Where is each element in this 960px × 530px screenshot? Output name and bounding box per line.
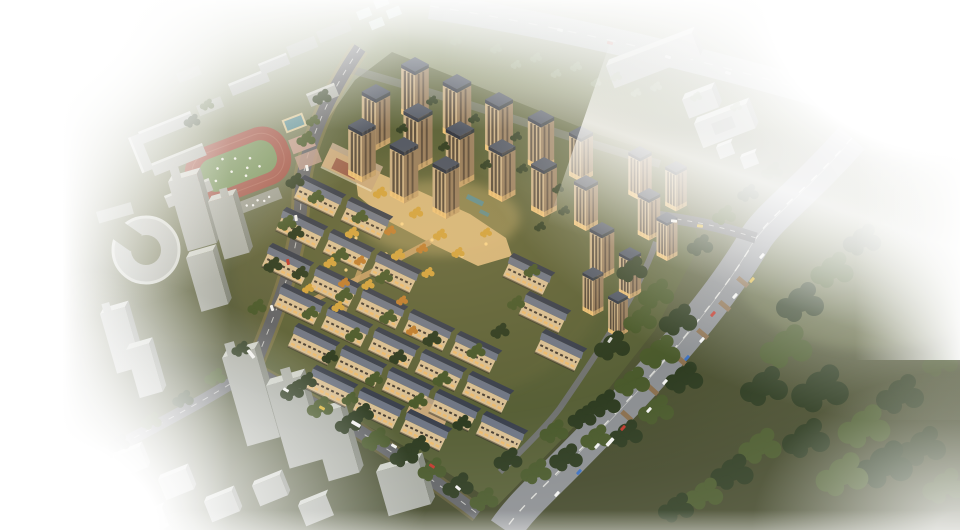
crescent-building [111,217,179,283]
aerial-rendering [0,0,960,530]
rendering-svg [0,0,960,530]
